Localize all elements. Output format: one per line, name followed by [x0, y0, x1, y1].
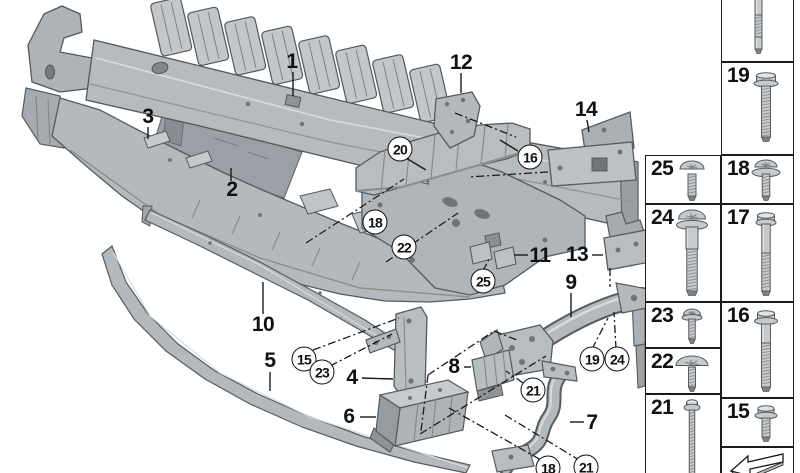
- fastener-cell-threaded-stud-icon[interactable]: [721, 0, 794, 62]
- part-14-bracket[interactable]: [548, 112, 636, 186]
- hex-flange-bolt-icon: [722, 63, 795, 156]
- fastener-cell-21[interactable]: 21: [645, 394, 721, 473]
- callout-1[interactable]: 1: [286, 50, 297, 74]
- fastener-cell-19[interactable]: 19: [721, 62, 794, 155]
- callout-8[interactable]: 8: [448, 355, 459, 379]
- fastener-cell-15[interactable]: 15: [721, 398, 794, 447]
- hex-flange-screw-short-icon: [722, 399, 795, 448]
- torx-flange-screw-icon: [646, 303, 722, 349]
- callout-10[interactable]: 10: [252, 313, 274, 337]
- fastener-cell-23[interactable]: 23: [645, 302, 721, 348]
- part-6-crash-can[interactable]: [370, 380, 468, 452]
- mushroom-head-screw-icon: [646, 349, 722, 395]
- callout-6[interactable]: 6: [343, 405, 354, 429]
- callout-7[interactable]: 7: [586, 411, 597, 435]
- fastener-cell-24[interactable]: 24: [645, 204, 721, 302]
- shoulder-torx-screw-icon: [646, 205, 722, 303]
- callout-18-circled[interactable]: 18: [363, 210, 388, 235]
- callout-21-circled[interactable]: 21: [521, 378, 546, 403]
- callout-24-circled[interactable]: 24: [605, 347, 630, 372]
- callout-25-circled[interactable]: 25: [471, 269, 496, 294]
- fastener-cell-25[interactable]: 25: [645, 155, 721, 204]
- parts-diagram-page: 1234567891011121314151618181920212122232…: [0, 0, 800, 473]
- callout-3[interactable]: 3: [142, 105, 153, 129]
- callout-13[interactable]: 13: [566, 243, 588, 267]
- fastener-cell-direction-arrow-icon[interactable]: [721, 447, 794, 473]
- fastener-cell-16[interactable]: 16: [721, 302, 794, 398]
- hex-bolt-long-icon: [722, 205, 795, 303]
- callout-2[interactable]: 2: [226, 178, 237, 202]
- callout-21-circled[interactable]: 21: [574, 455, 599, 473]
- fastener-cell-18[interactable]: 18: [721, 155, 794, 204]
- callout-5[interactable]: 5: [264, 349, 275, 373]
- hex-flange-bolt-long-icon: [722, 303, 795, 399]
- callout-12[interactable]: 12: [450, 51, 472, 75]
- callout-23-circled[interactable]: 23: [310, 360, 335, 385]
- callout-14[interactable]: 14: [575, 98, 597, 122]
- threaded-stud-icon: [722, 0, 795, 63]
- callout-9[interactable]: 9: [565, 271, 576, 295]
- torx-screw-washer-icon: [722, 156, 795, 205]
- callout-22-circled[interactable]: 22: [392, 235, 417, 260]
- callout-20-circled[interactable]: 20: [388, 137, 413, 162]
- fastener-cell-17[interactable]: 17: [721, 204, 794, 302]
- callout-18-circled[interactable]: 18: [536, 456, 561, 473]
- thin-screw-long-icon: [646, 395, 722, 473]
- fastener-cell-22[interactable]: 22: [645, 348, 721, 394]
- callout-19-circled[interactable]: 19: [580, 347, 605, 372]
- direction-arrow-icon: [722, 448, 795, 473]
- part-4-bracket[interactable]: [394, 307, 427, 398]
- callout-11[interactable]: 11: [529, 244, 550, 268]
- callout-4[interactable]: 4: [346, 366, 357, 390]
- pan-head-torx-screw-icon: [646, 156, 722, 205]
- callout-16-circled[interactable]: 16: [518, 145, 543, 170]
